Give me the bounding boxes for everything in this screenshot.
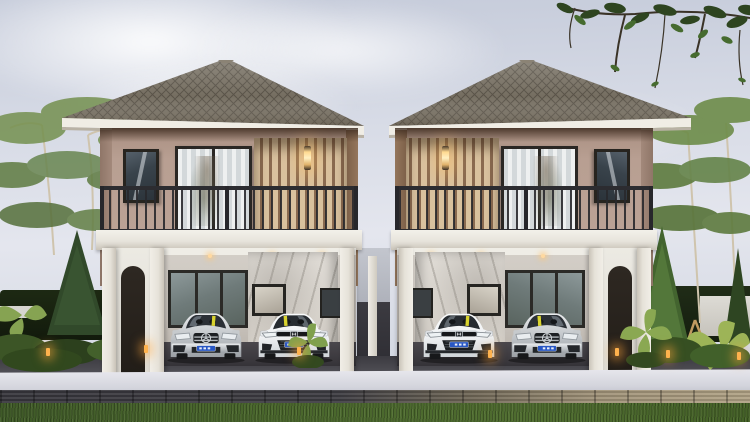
balcony-floor-slab bbox=[391, 230, 657, 250]
overhanging-branch bbox=[505, 0, 750, 110]
garden-bollard-light bbox=[666, 350, 670, 358]
garden-bollard-light bbox=[737, 352, 741, 360]
garden-bollard-light bbox=[46, 348, 50, 356]
garden-bollard-light bbox=[144, 345, 148, 353]
garden-bollard-light bbox=[297, 347, 301, 355]
scene-architectural-render bbox=[0, 0, 750, 422]
wall-sconce-light bbox=[442, 146, 449, 170]
gap-fence-post bbox=[368, 256, 377, 366]
palm-plant bbox=[286, 312, 330, 368]
garden-bollard-light bbox=[615, 348, 619, 356]
railing-post bbox=[354, 186, 358, 232]
wall-sconce-light bbox=[304, 146, 311, 170]
car-mercedes-silver bbox=[505, 308, 589, 364]
balcony-railing bbox=[395, 186, 653, 236]
balcony-floor-slab bbox=[96, 230, 362, 250]
railing-post bbox=[649, 186, 653, 232]
ceiling-downlight bbox=[208, 254, 212, 258]
railing-post bbox=[524, 186, 528, 232]
balcony-railing bbox=[100, 186, 358, 236]
railing-post bbox=[100, 186, 104, 232]
railing-post bbox=[225, 186, 229, 232]
ceiling-downlight bbox=[541, 254, 545, 258]
garden-bollard-light bbox=[488, 350, 492, 358]
lawn bbox=[0, 403, 750, 422]
railing-post bbox=[395, 186, 399, 232]
car-mercedes-silver bbox=[164, 308, 248, 364]
